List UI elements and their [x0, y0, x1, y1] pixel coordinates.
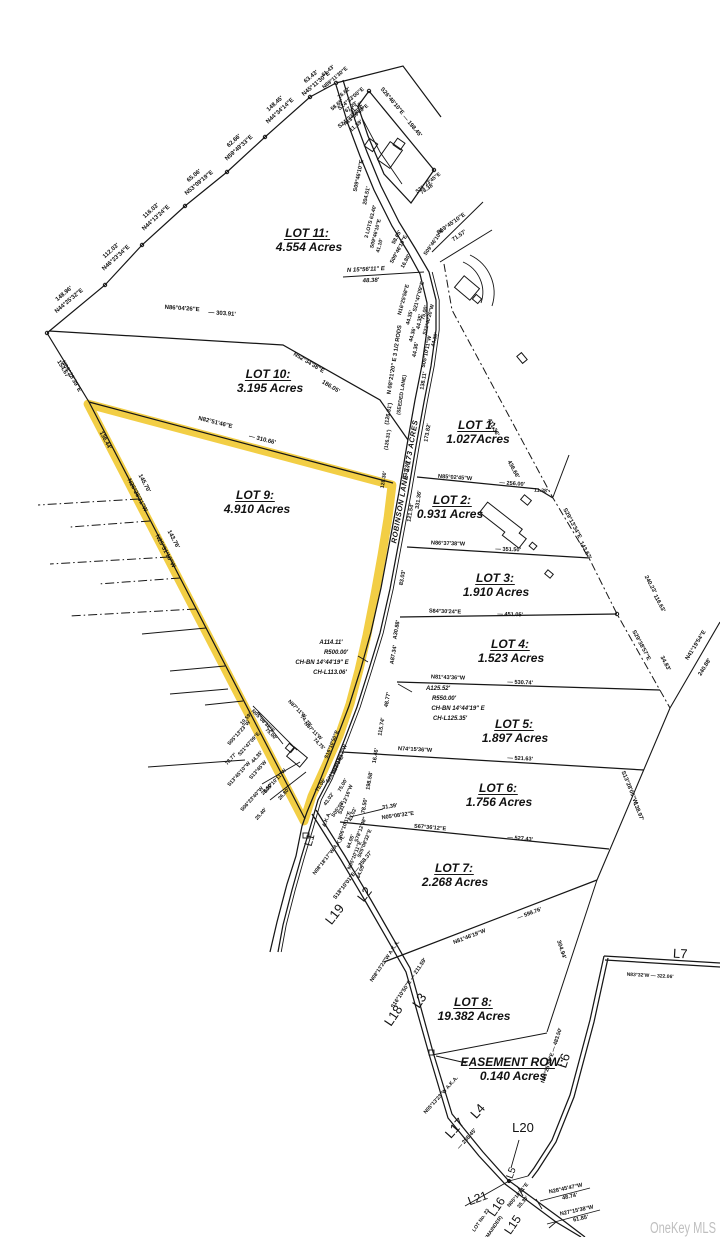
svg-text:61.85': 61.85' — [573, 1214, 590, 1223]
svg-text:R550.00': R550.00' — [432, 696, 457, 702]
svg-text:L16: L16 — [485, 1194, 508, 1219]
svg-text:L5: L5 — [505, 1166, 519, 1181]
svg-text:1.523 Acres: 1.523 Acres — [478, 651, 545, 665]
svg-text:1.027Acres: 1.027Acres — [446, 432, 510, 446]
svg-text:78.50': 78.50' — [361, 797, 370, 814]
svg-text:N87°11'W: N87°11'W — [286, 699, 307, 720]
svg-text:3.195 Acres: 3.195 Acres — [237, 381, 304, 395]
svg-text:R500.00': R500.00' — [324, 650, 349, 656]
svg-text:2.268 Acres: 2.268 Acres — [421, 875, 489, 889]
svg-text:S29°38'57"E: S29°38'57"E — [630, 629, 651, 662]
svg-text:LOT 8:: LOT 8: — [454, 995, 492, 1009]
svg-text:— 256.00': — 256.00' — [499, 480, 526, 488]
svg-text:44.36': 44.36' — [408, 327, 418, 343]
svg-text:N74°15'36"W: N74°15'36"W — [398, 746, 433, 754]
svg-text:L21: L21 — [466, 1188, 490, 1208]
svg-text:LOT 6:: LOT 6: — [479, 781, 517, 795]
svg-text:L4: L4 — [467, 1101, 488, 1122]
svg-text:204.51': 204.51' — [362, 186, 372, 206]
svg-text:S84°30'24"E: S84°30'24"E — [429, 608, 462, 615]
svg-text:48.74': 48.74' — [562, 1192, 579, 1201]
svg-text:CH-BN 14°44'19" E: CH-BN 14°44'19" E — [295, 660, 349, 666]
svg-text:N41°19'54"E: N41°19'54"E — [685, 629, 708, 661]
svg-text:N52°34'38"E: N52°34'38"E — [292, 352, 325, 375]
svg-text:LOT 1:: LOT 1: — [458, 418, 496, 432]
svg-text:143.76': 143.76' — [166, 529, 181, 550]
svg-text:LOT 3:: LOT 3: — [476, 571, 514, 585]
svg-text:LOT 11:: LOT 11: — [285, 226, 329, 240]
svg-text:(SEEDED LANE): (SEEDED LANE) — [396, 374, 408, 415]
svg-text:N86°04'26"E: N86°04'26"E — [164, 305, 199, 313]
svg-text:1.910 Acres: 1.910 Acres — [463, 585, 530, 599]
svg-text:L15: L15 — [501, 1212, 524, 1237]
svg-text:— 598.76': — 598.76' — [517, 906, 544, 921]
svg-text:48.77': 48.77' — [384, 691, 393, 708]
svg-text:N81°43'36"W: N81°43'36"W — [431, 674, 466, 681]
svg-text:N 15°56'11" E: N 15°56'11" E — [347, 266, 386, 274]
svg-text:4.910 Acres: 4.910 Acres — [223, 502, 291, 516]
svg-text:LOT 9:: LOT 9: — [236, 488, 274, 502]
svg-text:N28°45'47"W: N28°45'47"W — [548, 1182, 583, 1195]
svg-text:L20: L20 — [512, 1120, 534, 1135]
svg-text:16.80': 16.80' — [400, 254, 412, 270]
svg-text:16.46': 16.46' — [372, 747, 381, 764]
svg-text:31.39': 31.39' — [382, 803, 399, 811]
svg-text:43.02': 43.02' — [348, 807, 359, 822]
svg-text:240.23': 240.23' — [643, 575, 658, 595]
svg-text:L19: L19 — [322, 901, 347, 927]
svg-text:CH-BN 14°44'19" E: CH-BN 14°44'19" E — [431, 706, 485, 712]
svg-text:240.88': 240.88' — [698, 657, 714, 677]
svg-text:N83°32'W — 322.06': N83°32'W — 322.06' — [626, 972, 673, 980]
svg-text:436.66': 436.66' — [506, 460, 521, 480]
svg-text:0.931 Acres: 0.931 Acres — [417, 507, 484, 521]
svg-text:— 303.91': — 303.91' — [208, 310, 236, 318]
svg-text:A125.52': A125.52' — [425, 686, 451, 692]
svg-text:N27°15'38"W: N27°15'38"W — [559, 1204, 594, 1217]
svg-text:N81°46'19"W: N81°46'19"W — [453, 928, 488, 946]
svg-text:198.58': 198.58' — [365, 771, 374, 791]
svg-text:186.05': 186.05' — [320, 379, 341, 395]
svg-text:L1: L1 — [303, 833, 318, 848]
svg-text:— 451.05': — 451.05' — [497, 612, 523, 619]
svg-text:N86°37'38"W: N86°37'38"W — [431, 540, 466, 547]
svg-text:1.897 Acres: 1.897 Acres — [482, 731, 549, 745]
svg-text:44.35': 44.35' — [405, 310, 415, 326]
svg-text:N82°51'46"E: N82°51'46"E — [198, 416, 233, 430]
svg-text:A87.34': A87.34' — [389, 644, 398, 665]
svg-text:19.382 Acres: 19.382 Acres — [438, 1009, 511, 1023]
svg-text:N85°02'45"W: N85°02'45"W — [438, 474, 473, 482]
svg-text:116.63': 116.63' — [652, 594, 666, 614]
svg-text:— 198.45': — 198.45' — [401, 114, 423, 139]
svg-text:34.83': 34.83' — [659, 655, 672, 672]
svg-text:(126.31'): (126.31') — [383, 429, 392, 451]
svg-text:78.77': 78.77' — [224, 752, 238, 767]
svg-text:A114.11': A114.11' — [318, 640, 343, 646]
svg-text:173.82': 173.82' — [423, 423, 432, 443]
svg-text:4.554 Acres: 4.554 Acres — [275, 240, 343, 254]
svg-text:A30.88': A30.88' — [392, 619, 401, 640]
svg-text:48.38': 48.38' — [362, 278, 380, 285]
svg-text:25.40': 25.40' — [254, 807, 268, 822]
svg-text:11.38': 11.38' — [534, 488, 548, 495]
svg-text:(126.31'): (126.31') — [384, 402, 394, 425]
svg-text:N09°28'39"E: N09°28'39"E — [60, 360, 83, 393]
svg-text:LOT 4:: LOT 4: — [491, 637, 529, 651]
svg-text:S26°46'10"E: S26°46'10"E — [379, 87, 405, 117]
svg-text:0.140 Acres: 0.140 Acres — [480, 1069, 547, 1083]
svg-text:138.97': 138.97' — [632, 802, 645, 823]
svg-text:83.03': 83.03' — [399, 569, 408, 586]
svg-text:1.756 Acres: 1.756 Acres — [466, 795, 533, 809]
svg-text:A.K.A.: A.K.A. — [321, 811, 333, 828]
svg-text:LOT 2:: LOT 2: — [433, 493, 471, 507]
svg-text:L7: L7 — [673, 946, 688, 962]
svg-text:CH-L125.35': CH-L125.35' — [433, 716, 468, 722]
svg-text:LOT 7:: LOT 7: — [435, 861, 473, 875]
svg-text:S29°13'34"E: S29°13'34"E — [561, 507, 582, 540]
svg-text:LOT 10:: LOT 10: — [246, 367, 291, 381]
svg-text:S13°45'W: S13°45'W — [248, 760, 268, 781]
svg-text:OneKey MLS: OneKey MLS — [650, 1220, 716, 1237]
svg-text:— 530.74': — 530.74' — [507, 680, 533, 687]
svg-text:115.74': 115.74' — [377, 717, 386, 737]
svg-text:304.94': 304.94' — [555, 940, 567, 961]
svg-text:— 527.43': — 527.43' — [507, 835, 534, 843]
svg-text:N05°08'32"E: N05°08'32"E — [381, 811, 414, 822]
svg-text:121.54': 121.54' — [406, 503, 415, 523]
svg-text:EASEMENT ROW:: EASEMENT ROW: — [461, 1055, 564, 1069]
svg-text:LOT 5:: LOT 5: — [495, 717, 533, 731]
svg-text:CH-L113.06': CH-L113.06' — [313, 670, 347, 676]
svg-text:44.36': 44.36' — [412, 341, 421, 358]
